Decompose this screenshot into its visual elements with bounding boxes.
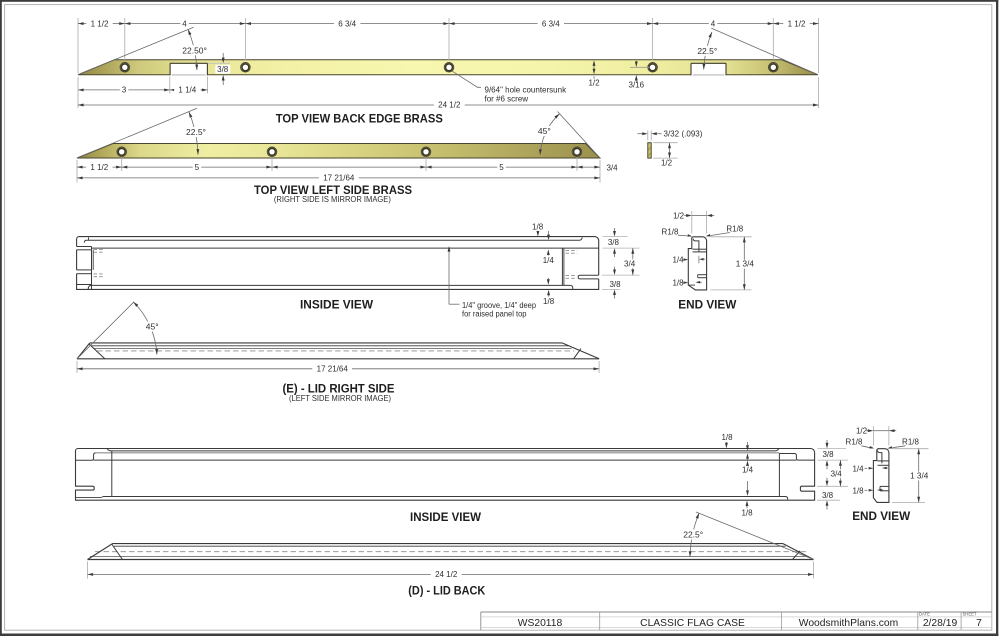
svg-text:R1/8: R1/8: [902, 437, 919, 446]
svg-text:1/4: 1/4: [742, 466, 754, 475]
svg-text:3/16: 3/16: [629, 81, 645, 90]
svg-text:INSIDE VIEW: INSIDE VIEW: [410, 510, 481, 524]
svg-text:WoodsmithPlans.com: WoodsmithPlans.com: [799, 618, 898, 629]
svg-text:SHEET: SHEET: [963, 612, 977, 617]
svg-text:1/2: 1/2: [856, 427, 868, 436]
svg-text:R1/8: R1/8: [846, 437, 863, 446]
svg-text:R1/8: R1/8: [662, 228, 679, 237]
svg-text:INSIDE VIEW: INSIDE VIEW: [300, 298, 373, 312]
svg-text:1/8: 1/8: [741, 508, 753, 517]
svg-text:1 1/2: 1 1/2: [788, 19, 806, 28]
svg-text:3/8: 3/8: [217, 65, 229, 74]
svg-text:3/8: 3/8: [609, 280, 621, 289]
svg-text:1/8: 1/8: [852, 486, 864, 495]
svg-text:1 1/2: 1 1/2: [90, 163, 108, 172]
svg-text:3: 3: [122, 86, 127, 95]
svg-text:for raised panel top: for raised panel top: [462, 309, 527, 318]
svg-text:6 3/4: 6 3/4: [542, 19, 560, 28]
svg-text:9/64" hole countersunk: 9/64" hole countersunk: [485, 85, 568, 94]
svg-text:(LEFT SIDE MIRROR IMAGE): (LEFT SIDE MIRROR IMAGE): [289, 394, 391, 403]
svg-text:1/4: 1/4: [672, 256, 684, 265]
svg-text:CLASSIC FLAG CASE: CLASSIC FLAG CASE: [640, 618, 745, 629]
svg-text:DATE: DATE: [919, 612, 930, 617]
svg-text:1/8: 1/8: [532, 222, 544, 231]
svg-text:5: 5: [499, 163, 504, 172]
svg-text:(.093): (.093): [682, 130, 703, 139]
svg-text:3/8: 3/8: [822, 491, 834, 500]
svg-text:1/4: 1/4: [852, 464, 864, 473]
svg-text:3/4: 3/4: [606, 163, 618, 172]
svg-text:17 21/64: 17 21/64: [323, 174, 355, 183]
svg-text:1/2: 1/2: [673, 211, 685, 220]
svg-text:17 21/64: 17 21/64: [317, 365, 349, 374]
svg-text:(D) - LID BACK: (D) - LID BACK: [408, 583, 485, 597]
svg-text:1 3/4: 1 3/4: [736, 260, 755, 269]
svg-text:22.50°: 22.50°: [182, 45, 207, 55]
svg-text:for #6 screw: for #6 screw: [485, 95, 529, 104]
svg-text:24 1/2: 24 1/2: [438, 101, 461, 110]
svg-text:3/32: 3/32: [664, 130, 680, 139]
svg-text:3/4: 3/4: [624, 259, 636, 268]
svg-text:1/8: 1/8: [721, 433, 733, 442]
svg-text:END VIEW: END VIEW: [678, 297, 736, 311]
svg-text:45°: 45°: [538, 126, 551, 136]
svg-text:1 3/4: 1 3/4: [910, 471, 929, 480]
svg-text:(RIGHT SIDE IS MIRROR IMAGE): (RIGHT SIDE IS MIRROR IMAGE): [274, 195, 391, 204]
svg-text:3/4: 3/4: [831, 469, 843, 478]
svg-text:5: 5: [195, 163, 200, 172]
svg-text:1/4: 1/4: [543, 256, 555, 265]
svg-text:6 3/4: 6 3/4: [338, 19, 356, 28]
svg-text:TOP VIEW BACK EDGE BRASS: TOP VIEW BACK EDGE BRASS: [276, 111, 443, 125]
svg-text:24 1/2: 24 1/2: [435, 570, 458, 579]
svg-text:4: 4: [711, 19, 716, 28]
svg-text:22.5°: 22.5°: [697, 46, 717, 56]
svg-text:3/8: 3/8: [608, 238, 620, 247]
svg-text:1/2: 1/2: [588, 78, 600, 87]
svg-text:1/8: 1/8: [543, 297, 555, 306]
svg-text:2/28/19: 2/28/19: [923, 618, 958, 629]
svg-text:7: 7: [976, 618, 982, 629]
svg-text:END VIEW: END VIEW: [852, 509, 910, 523]
svg-text:1 1/2: 1 1/2: [91, 19, 109, 28]
svg-text:22.5°: 22.5°: [683, 530, 703, 540]
svg-text:1/2: 1/2: [661, 159, 673, 168]
svg-text:4: 4: [182, 19, 187, 28]
svg-text:1 1/4: 1 1/4: [178, 86, 196, 95]
svg-text:R1/8: R1/8: [726, 224, 743, 233]
svg-text:22.5°: 22.5°: [186, 127, 206, 137]
svg-text:1/8: 1/8: [672, 279, 684, 288]
svg-text:3/8: 3/8: [822, 450, 834, 459]
svg-text:45°: 45°: [146, 322, 159, 332]
svg-text:WS20118: WS20118: [518, 618, 563, 629]
